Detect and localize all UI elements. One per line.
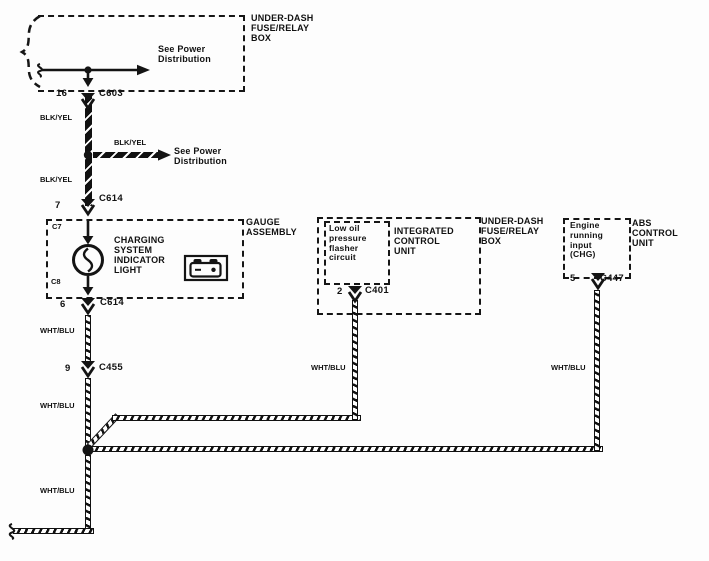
wire-label-blkyel-3: BLK/YEL bbox=[40, 176, 72, 184]
engine-running-input-label: Engine running input (CHG) bbox=[570, 221, 603, 260]
wire-whtblu-left-a bbox=[85, 315, 91, 364]
terminal-c7: C7 bbox=[52, 223, 62, 231]
connector-label-c614-bottom: C614 bbox=[100, 298, 124, 309]
wire-whtblu-left-c bbox=[85, 455, 91, 532]
connector-label-c447: C447 bbox=[600, 274, 624, 285]
terminal-c8: C8 bbox=[51, 278, 61, 286]
pin-9: 9 bbox=[65, 364, 71, 375]
see-power-note-top: See Power Distribution bbox=[158, 44, 211, 64]
wire-blkyel-vertical bbox=[85, 96, 92, 206]
wire-label-blkyel-1: BLK/YEL bbox=[40, 114, 72, 122]
see-power-note-mid: See Power Distribution bbox=[174, 146, 227, 166]
connector-label-c603: C603 bbox=[99, 89, 123, 100]
connector-label-c455: C455 bbox=[99, 363, 123, 374]
wire-whtblu-bottom-run bbox=[13, 528, 94, 534]
pin-16: 16 bbox=[56, 89, 67, 100]
fuse-box-top-label: UNDER-DASH FUSE/RELAY BOX bbox=[251, 13, 314, 43]
charging-light-label: CHARGING SYSTEM INDICATOR LIGHT bbox=[114, 235, 165, 275]
under-dash-fuse-box-top bbox=[38, 15, 245, 92]
low-oil-circuit-label: Low oil pressure flasher circuit bbox=[329, 224, 367, 263]
wire-label-whtblu-bottom: WHT/BLU bbox=[40, 487, 75, 495]
wire-whtblu-lower-run bbox=[91, 446, 603, 452]
wiring-diagram: UNDER-DASH FUSE/RELAY BOX See Power Dist… bbox=[0, 0, 709, 561]
arrow-right-icon bbox=[158, 149, 171, 160]
pin-6: 6 bbox=[60, 300, 66, 311]
abs-control-unit-label: ABS CONTROL UNIT bbox=[632, 218, 678, 248]
integrated-control-unit-label: INTEGRATED CONTROL UNIT bbox=[394, 226, 454, 256]
pin-7: 7 bbox=[55, 201, 61, 212]
wire-label-whtblu-right: WHT/BLU bbox=[551, 364, 586, 372]
wire-label-whtblu-1: WHT/BLU bbox=[40, 327, 75, 335]
pin-5: 5 bbox=[570, 274, 576, 285]
fuse-box-mid-label: UNDER-DASH FUSE/RELAY BOX bbox=[481, 216, 544, 246]
wire-whtblu-right-vertical bbox=[594, 290, 600, 451]
wire-label-whtblu-mid: WHT/BLU bbox=[311, 364, 346, 372]
wire-label-whtblu-2: WHT/BLU bbox=[40, 402, 75, 410]
wire-whtblu-left-b bbox=[85, 378, 91, 448]
wire-whtblu-middle-vertical bbox=[352, 300, 358, 420]
wire-label-blkyel-2: BLK/YEL bbox=[114, 139, 146, 147]
gauge-assembly-label: GAUGE ASSEMBLY bbox=[246, 217, 297, 237]
wire-blkyel-branch bbox=[93, 152, 158, 158]
wire-whtblu-upper-run bbox=[112, 415, 361, 421]
connector-label-c401: C401 bbox=[365, 286, 389, 297]
connector-icon-c614-bottom bbox=[81, 298, 95, 313]
connector-label-c614-top: C614 bbox=[99, 194, 123, 205]
pin-2: 2 bbox=[337, 287, 343, 298]
